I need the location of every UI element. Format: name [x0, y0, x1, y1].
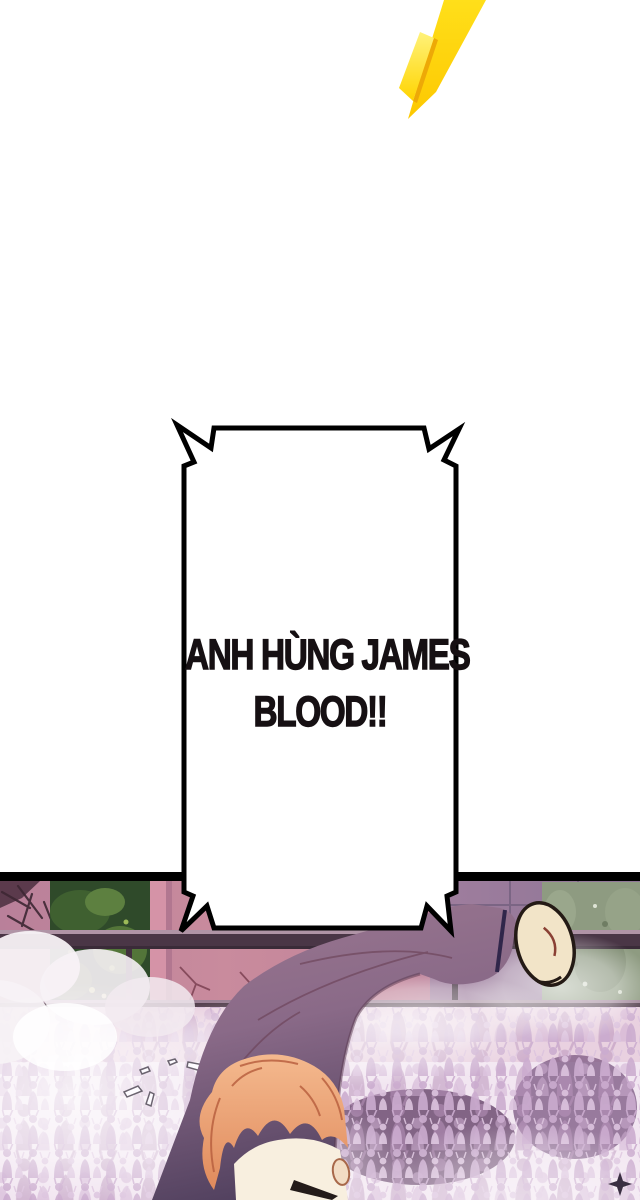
bubble-text-line1: ANH HÙNG JAMES	[185, 626, 455, 683]
effects-overlay	[0, 0, 640, 1200]
lightning-effect	[399, 0, 486, 119]
bubble-text: ANH HÙNG JAMES BLOOD!!	[185, 626, 455, 740]
bubble-text-line2: BLOOD!!	[185, 683, 455, 740]
